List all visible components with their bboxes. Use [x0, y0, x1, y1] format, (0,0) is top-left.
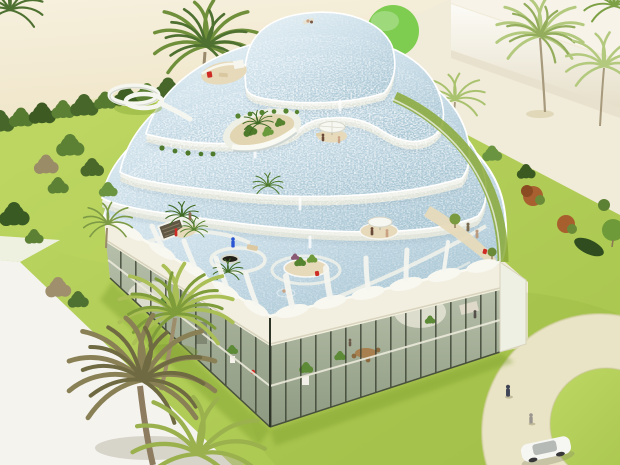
render-canvas: Aerial 3D architectural rendering of a t… — [0, 0, 620, 465]
red-seat-alcove — [207, 71, 213, 78]
figure-roof-1 — [189, 212, 192, 220]
parasol-deck-upper — [316, 122, 347, 144]
architectural-render: Aerial 3D architectural rendering of a t… — [0, 0, 620, 465]
figure-red — [175, 228, 178, 236]
parasol-icon — [368, 217, 392, 227]
figure-blue — [231, 237, 235, 247]
